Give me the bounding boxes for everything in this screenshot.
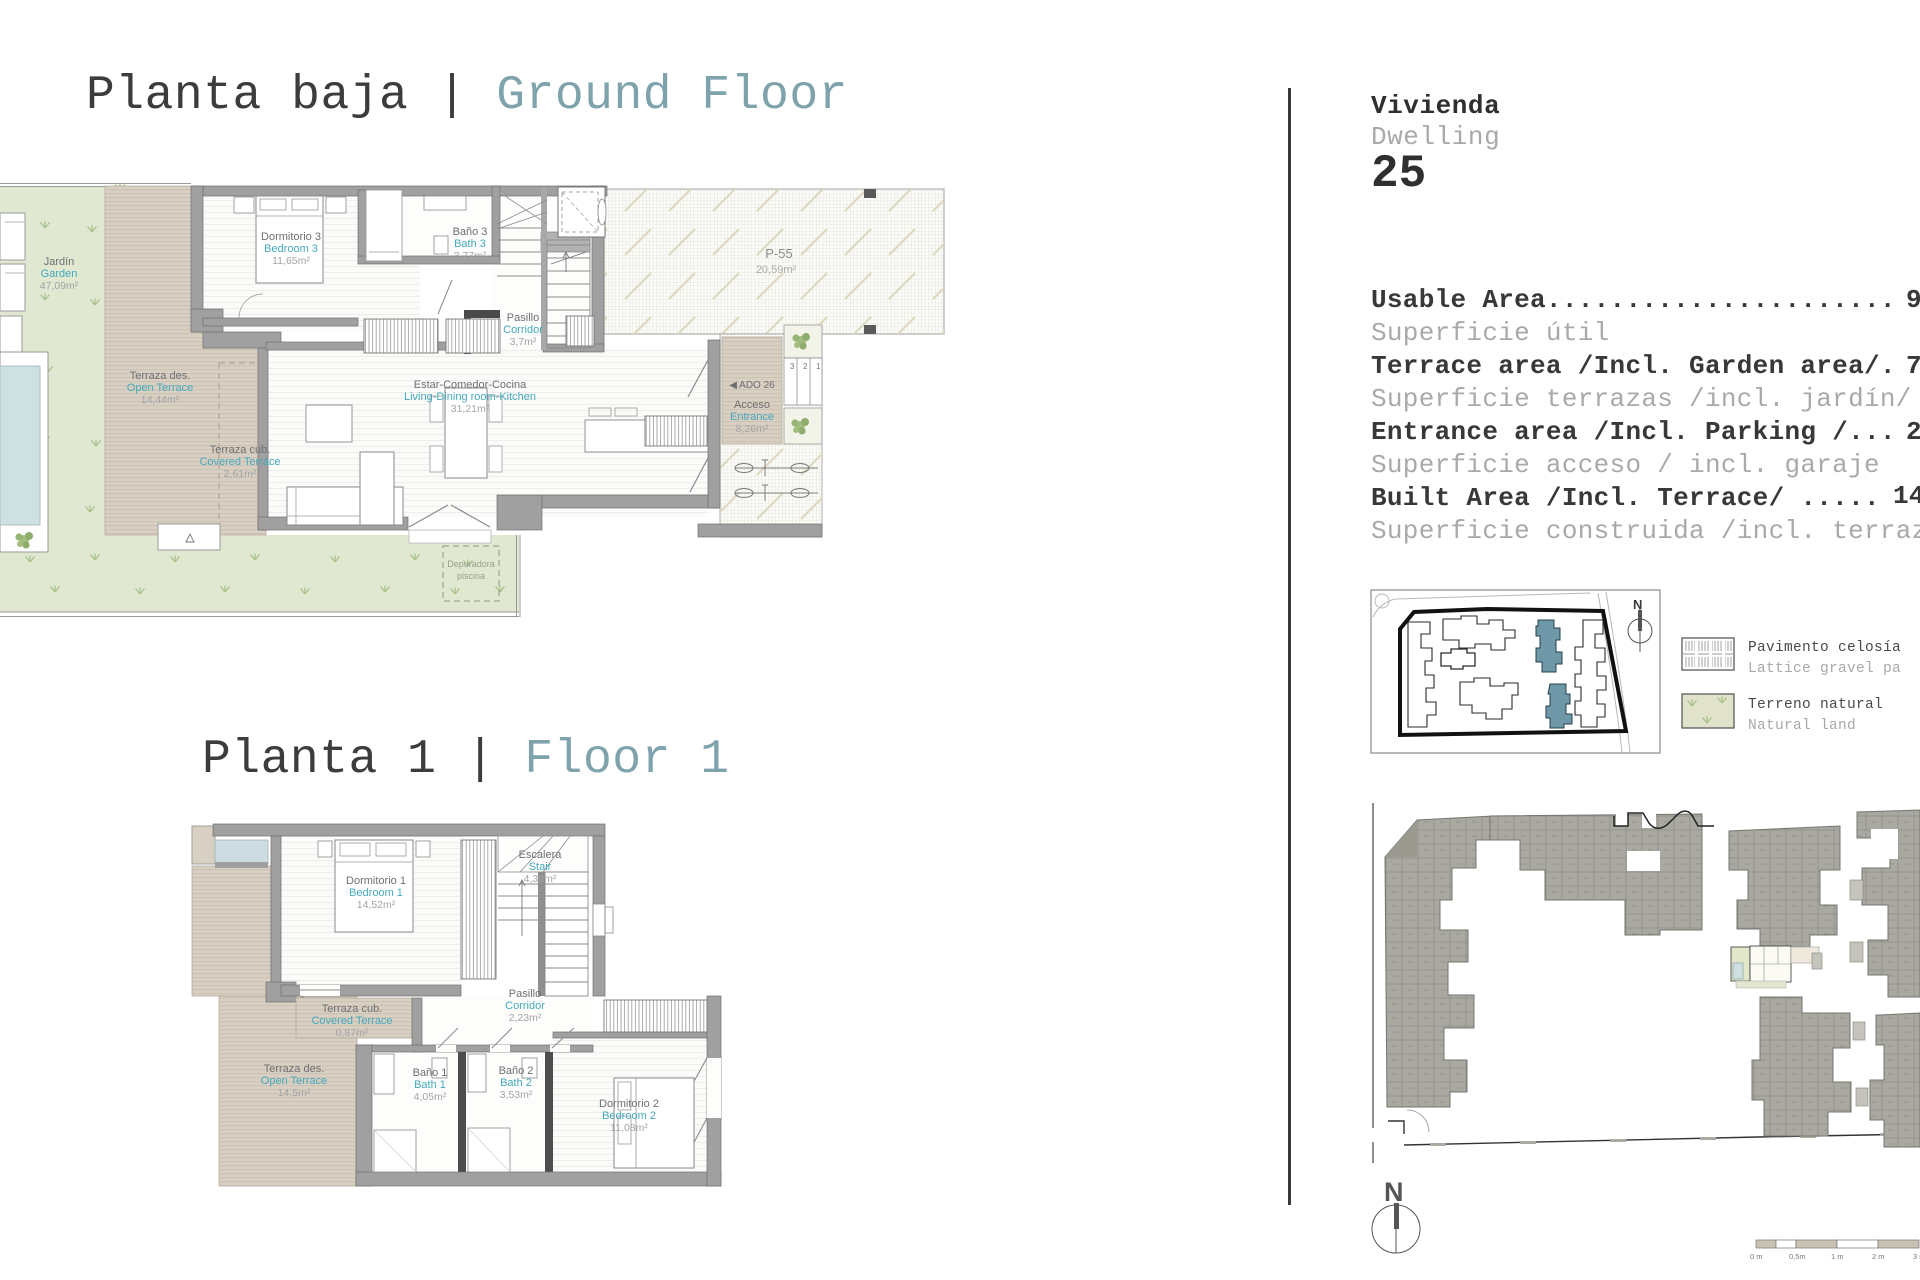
svg-text:Baño 2: Baño 2 [499, 1065, 534, 1077]
svg-text:Bedroom 3: Bedroom 3 [264, 243, 318, 255]
svg-text:P-55: P-55 [765, 246, 792, 261]
svg-text:Estar-Comedor-Cocina: Estar-Comedor-Cocina [414, 379, 527, 391]
svg-text:◀ ADO 26: ◀ ADO 26 [729, 380, 775, 391]
svg-text:Built Area /Incl. Terrace/ ...: Built Area /Incl. Terrace/ ..... [1371, 483, 1880, 513]
svg-text:Terrace area /Incl. Garden are: Terrace area /Incl. Garden area/. [1371, 351, 1896, 381]
svg-text:0 m: 0 m [1750, 1252, 1763, 1261]
svg-text:Vivienda: Vivienda [1371, 91, 1500, 121]
svg-text:Covered Terrace: Covered Terrace [311, 1015, 392, 1027]
svg-text:Bath 1: Bath 1 [414, 1079, 446, 1091]
svg-text:Dormitorio 3: Dormitorio 3 [261, 231, 321, 243]
svg-text:Lattice gravel pa: Lattice gravel pa [1748, 661, 1901, 677]
svg-text:1 m: 1 m [1831, 1252, 1844, 1261]
svg-text:4,39m²: 4,39m² [524, 873, 557, 885]
svg-text:piscina: piscina [457, 571, 485, 581]
svg-text:Bath 2: Bath 2 [500, 1077, 532, 1089]
svg-text:Terraza cub.: Terraza cub. [210, 444, 271, 456]
svg-text:Superficie útil: Superficie útil [1371, 318, 1610, 348]
svg-text:14,52m²: 14,52m² [357, 899, 396, 911]
svg-text:Terraza des.: Terraza des. [264, 1063, 325, 1075]
svg-text:Superficie acceso / incl. gara: Superficie acceso / incl. garaje [1371, 450, 1880, 480]
svg-text:7: 7 [1906, 351, 1920, 381]
svg-text:Superficie construida /incl. t: Superficie construida /incl. terraza [1371, 516, 1920, 546]
svg-text:Baño 3: Baño 3 [453, 226, 488, 238]
svg-text:Bedroom 2: Bedroom 2 [602, 1110, 656, 1122]
svg-text:31,21m²: 31,21m² [451, 403, 490, 415]
svg-text:25: 25 [1371, 148, 1426, 200]
svg-text:8,26m²: 8,26m² [736, 423, 769, 435]
svg-text:Garden: Garden [41, 268, 78, 280]
svg-text:Covered Terrace: Covered Terrace [199, 456, 280, 468]
svg-text:Corridor: Corridor [503, 324, 543, 336]
svg-text:3,53m²: 3,53m² [500, 1089, 533, 1101]
svg-text:0,87m²: 0,87m² [336, 1027, 369, 1039]
svg-text:Superficie terrazas /incl. jar: Superficie terrazas /incl. jardín/ [1371, 384, 1912, 414]
svg-text:14,44m²: 14,44m² [141, 394, 180, 406]
svg-text:14,5m²: 14,5m² [278, 1087, 311, 1099]
svg-text:3 m: 3 m [1913, 1252, 1920, 1261]
svg-text:9: 9 [1906, 285, 1920, 315]
svg-text:2,61m²: 2,61m² [224, 468, 257, 480]
svg-text:4,05m²: 4,05m² [414, 1091, 447, 1103]
svg-text:Natural land: Natural land [1748, 718, 1856, 734]
svg-text:Jardín: Jardín [44, 256, 75, 268]
svg-text:Entrance area /Incl. Parking /: Entrance area /Incl. Parking /... [1371, 417, 1896, 447]
svg-text:Dormitorio 2: Dormitorio 2 [599, 1098, 659, 1110]
svg-text:Open Terrace: Open Terrace [261, 1075, 327, 1087]
svg-text:Living-Dining room-Kitchen: Living-Dining room-Kitchen [404, 391, 536, 403]
svg-text:Pasillo: Pasillo [509, 988, 541, 1000]
svg-text:1: 1 [816, 362, 821, 371]
svg-text:Dormitorio 1: Dormitorio 1 [346, 875, 406, 887]
svg-text:Pavimento celosía: Pavimento celosía [1748, 640, 1901, 656]
svg-text:2: 2 [1906, 417, 1920, 447]
svg-text:Acceso: Acceso [734, 399, 770, 411]
svg-text:Open Terrace: Open Terrace [127, 382, 193, 394]
svg-text:Terreno natural: Terreno natural [1748, 697, 1883, 713]
svg-text:2 m: 2 m [1872, 1252, 1885, 1261]
svg-text:0,5m: 0,5m [1789, 1252, 1806, 1261]
svg-text:Terraza des.: Terraza des. [130, 370, 191, 382]
svg-text:11,65m²: 11,65m² [272, 255, 310, 267]
svg-text:Usable Area...................: Usable Area...................... [1371, 285, 1896, 315]
svg-text:Baño 1: Baño 1 [413, 1067, 448, 1079]
svg-text:20,59m²: 20,59m² [756, 264, 797, 276]
svg-text:2,23m²: 2,23m² [509, 1012, 542, 1024]
svg-text:Terraza cub.: Terraza cub. [322, 1003, 383, 1015]
svg-text:3: 3 [790, 362, 795, 371]
svg-text:Depuradora: Depuradora [447, 559, 495, 569]
svg-text:Bedroom 1: Bedroom 1 [349, 887, 403, 899]
svg-text:Stair: Stair [529, 861, 552, 873]
svg-text:11,08m²: 11,08m² [610, 1122, 648, 1134]
svg-text:N: N [1633, 597, 1642, 612]
svg-text:Bath 3: Bath 3 [454, 238, 486, 250]
svg-text:Corridor: Corridor [505, 1000, 545, 1012]
svg-text:N: N [1384, 1177, 1404, 1207]
svg-text:14: 14 [1893, 481, 1920, 511]
svg-text:47,09m²: 47,09m² [40, 280, 79, 292]
svg-text:Entrance: Entrance [730, 411, 774, 423]
svg-text:Planta baja | Ground Floor: Planta baja | Ground Floor [86, 69, 848, 123]
svg-text:Escalera: Escalera [519, 849, 563, 861]
svg-text:3,77m²: 3,77m² [454, 250, 487, 262]
svg-text:Pasillo: Pasillo [507, 312, 539, 324]
svg-text:2: 2 [803, 362, 808, 371]
svg-text:Planta 1 | Floor 1: Planta 1 | Floor 1 [202, 733, 730, 787]
svg-text:3,7m²: 3,7m² [510, 336, 537, 348]
